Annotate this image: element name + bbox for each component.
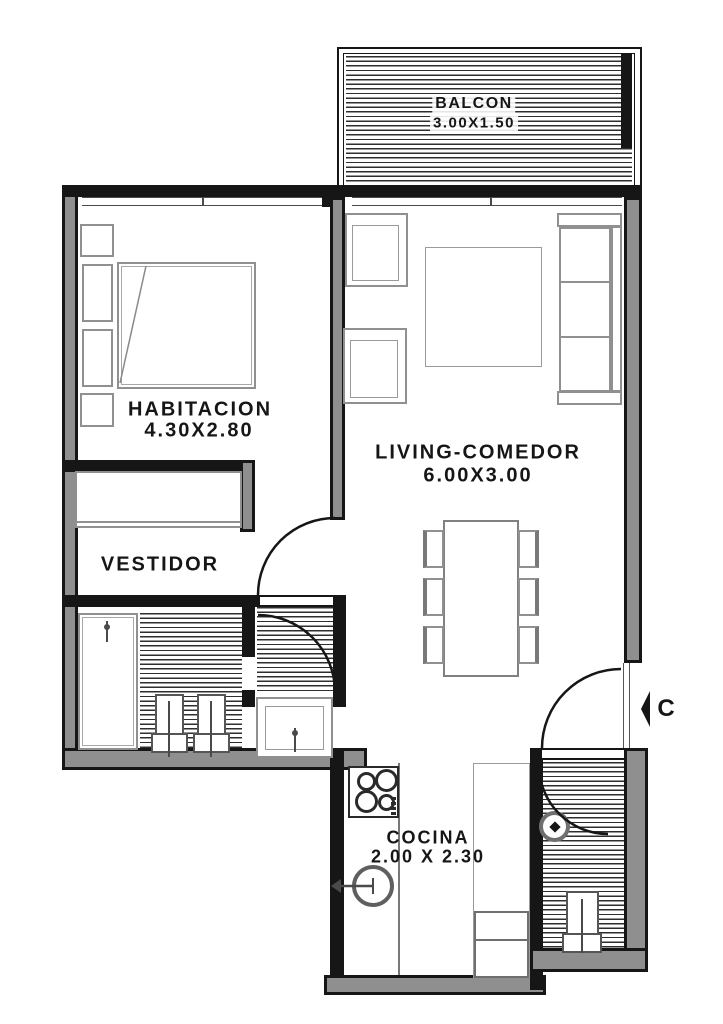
- vestidor-door-arc: [258, 518, 335, 595]
- entrance-door-arc: [542, 669, 621, 748]
- entrance-arrow-icon: [641, 691, 650, 727]
- annotation-layer: [0, 0, 723, 1024]
- sink-lever-arrow: [331, 879, 341, 893]
- floor-plan: BALCON 3.00X1.50: [0, 0, 723, 1024]
- bedroom-dims: 4.30X2.80: [144, 420, 253, 443]
- bed-fold-line: [120, 266, 146, 383]
- kitchen-label: COCINA: [387, 828, 470, 849]
- shower-head-dot: [104, 624, 110, 630]
- laundry-door-arc: [539, 765, 608, 834]
- bedroom-label: HABITACION: [128, 399, 272, 422]
- vestidor-label: VESTIDOR: [101, 554, 219, 577]
- living-dims: 6.00X3.00: [423, 465, 532, 488]
- vanity-tap-dot: [292, 730, 298, 736]
- entrance-label: C: [657, 695, 674, 723]
- kitchen-dims: 2.00 X 2.30: [371, 847, 485, 868]
- bathroom-door-arc: [258, 615, 335, 692]
- living-label: LIVING-COMEDOR: [375, 442, 581, 465]
